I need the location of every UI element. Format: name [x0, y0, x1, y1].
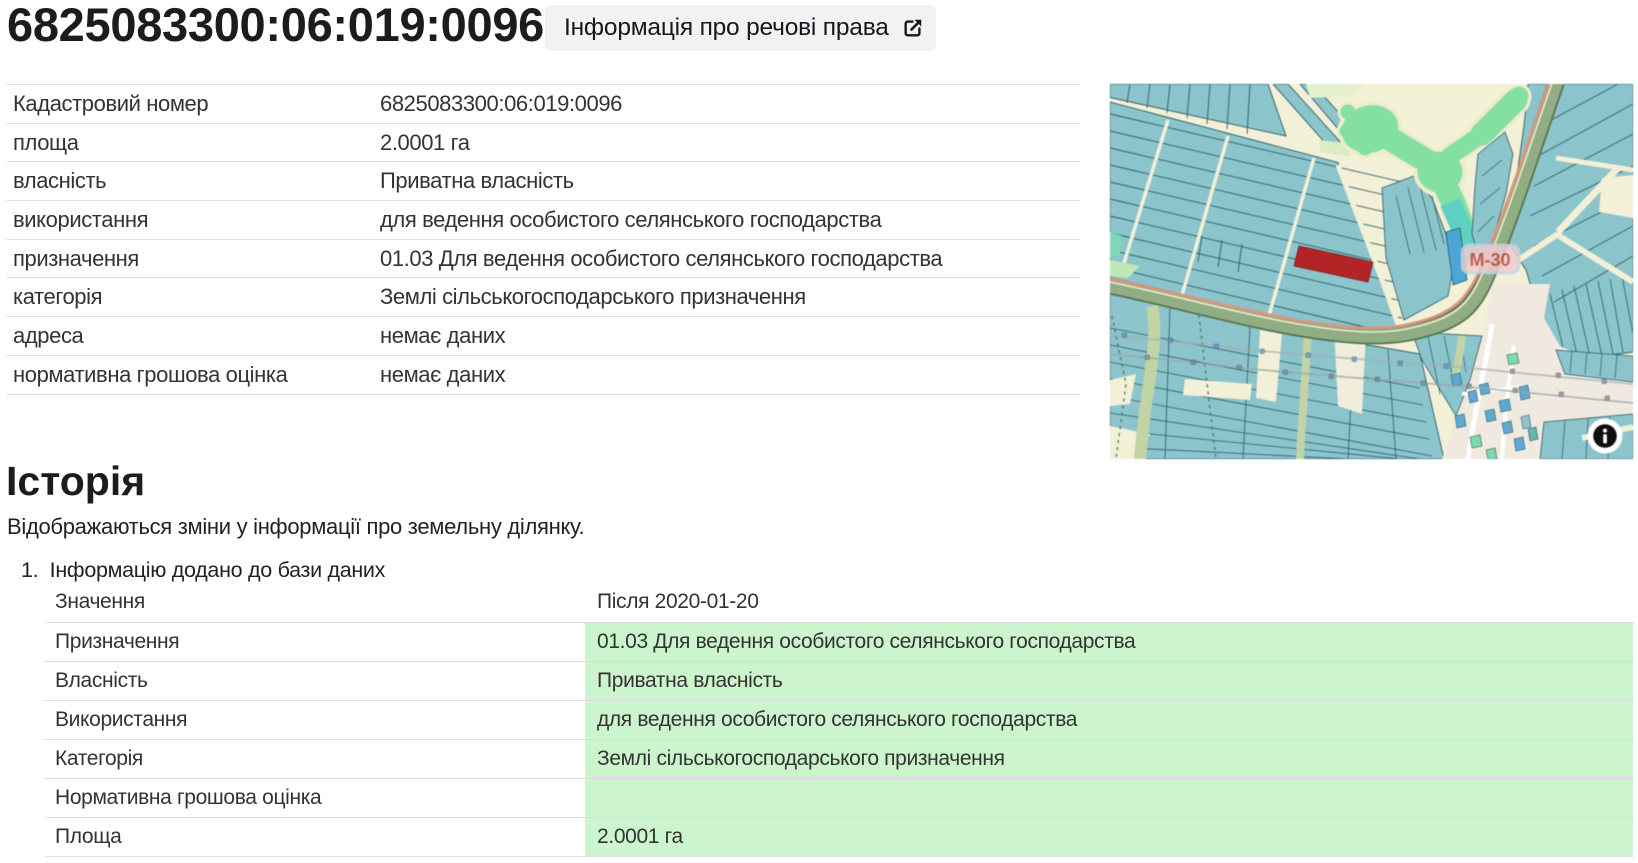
- svg-text:М-30: М-30: [1469, 250, 1510, 270]
